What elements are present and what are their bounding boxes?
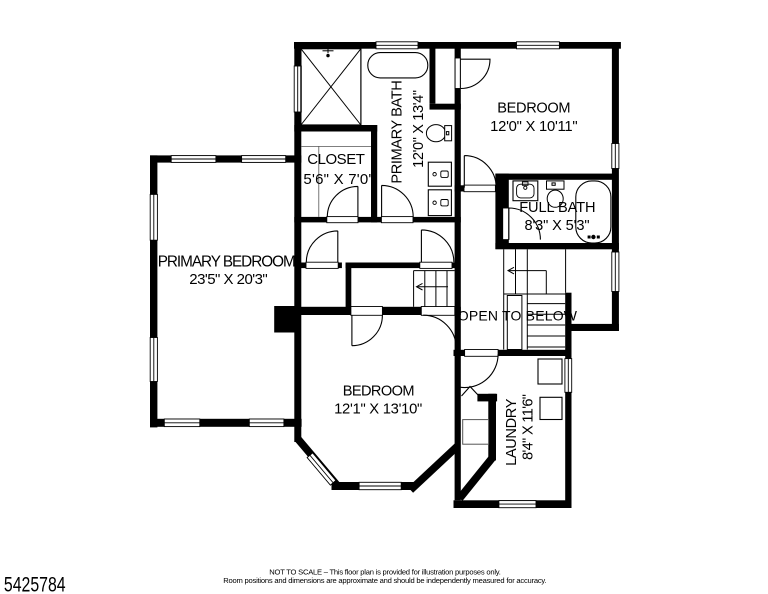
svg-text:12'1" X 13'10": 12'1" X 13'10" bbox=[334, 401, 422, 417]
svg-text:23'5" X 20'3": 23'5" X 20'3" bbox=[189, 271, 268, 288]
svg-text:FULL BATH: FULL BATH bbox=[519, 200, 595, 216]
svg-text:8'4" X 11'6": 8'4" X 11'6" bbox=[520, 394, 536, 460]
svg-text:PRIMARY BEDROOM: PRIMARY BEDROOM bbox=[158, 253, 296, 270]
svg-text:5425784: 5425784 bbox=[4, 572, 66, 594]
svg-text:BEDROOM: BEDROOM bbox=[343, 383, 415, 399]
svg-text:12'0" X 13'4": 12'0" X 13'4" bbox=[411, 90, 427, 168]
svg-text:CLOSET: CLOSET bbox=[307, 151, 365, 168]
svg-text:12'0" X 10'11": 12'0" X 10'11" bbox=[490, 119, 578, 135]
svg-text:PRIMARY BATH: PRIMARY BATH bbox=[390, 80, 406, 183]
svg-text:BEDROOM: BEDROOM bbox=[497, 101, 570, 117]
svg-text:8'3" X 5'3": 8'3" X 5'3" bbox=[524, 218, 589, 234]
svg-text:Room positions and dimensions: Room positions and dimensions are approx… bbox=[223, 576, 546, 585]
svg-text:5'6" X 7'0": 5'6" X 7'0" bbox=[303, 171, 373, 188]
svg-text:OPEN TO BELOW: OPEN TO BELOW bbox=[458, 308, 578, 324]
svg-text:LAUNDRY: LAUNDRY bbox=[504, 398, 520, 466]
